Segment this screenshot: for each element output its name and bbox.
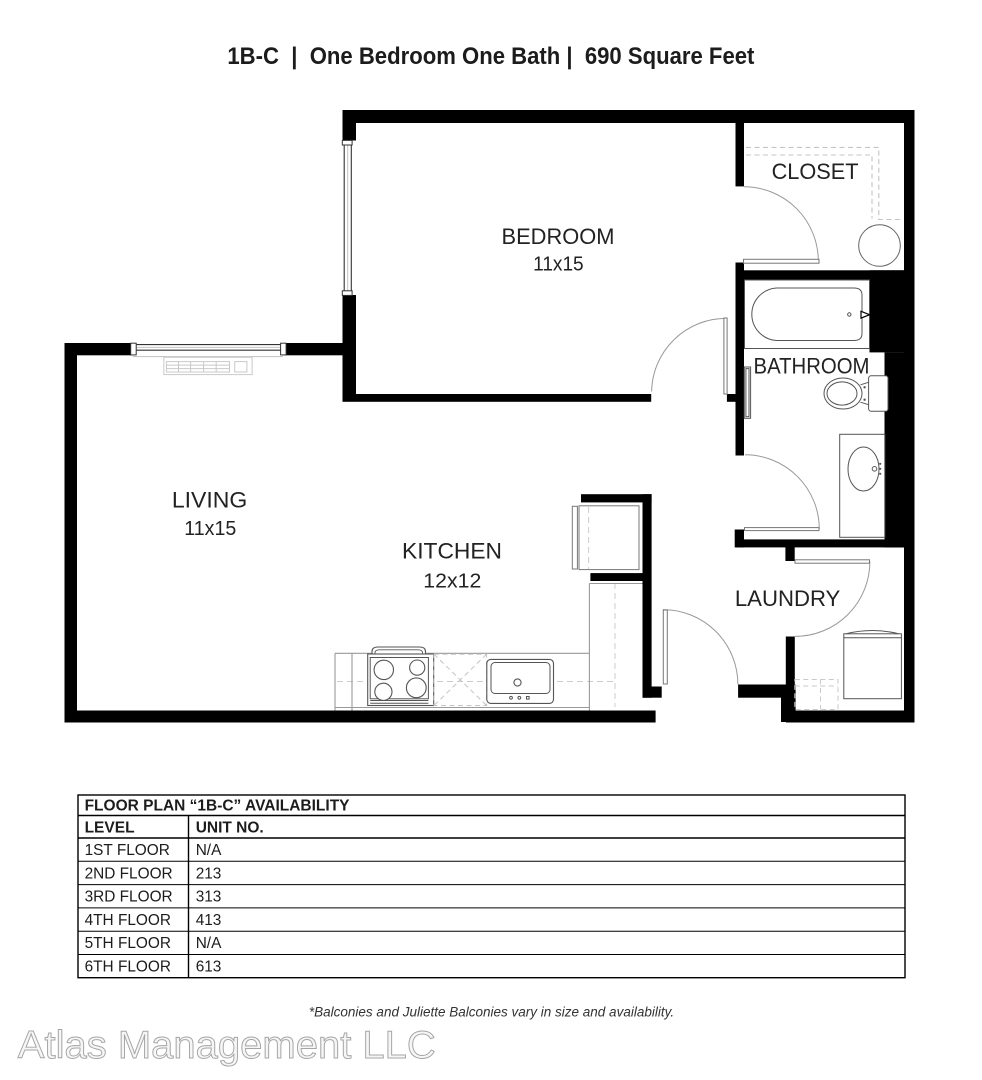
svg-text:213: 213 xyxy=(196,865,222,882)
svg-text:6TH FLOOR: 6TH FLOOR xyxy=(85,959,171,976)
svg-text:12x12: 12x12 xyxy=(423,570,481,593)
svg-text:11x15: 11x15 xyxy=(533,253,584,276)
svg-text:413: 413 xyxy=(196,912,222,929)
svg-text:LAUNDRY: LAUNDRY xyxy=(735,586,841,611)
svg-text:LEVEL: LEVEL xyxy=(85,820,135,837)
svg-text:KITCHEN: KITCHEN xyxy=(402,539,502,564)
svg-text:CLOSET: CLOSET xyxy=(772,159,859,184)
svg-text:LIVING: LIVING xyxy=(172,488,248,513)
svg-text:5TH FLOOR: 5TH FLOOR xyxy=(85,935,171,952)
svg-text:Atlas Management LLC: Atlas Management LLC xyxy=(18,1024,436,1067)
svg-text:613: 613 xyxy=(196,959,222,976)
svg-text:BATHROOM: BATHROOM xyxy=(754,353,870,378)
svg-text:N/A: N/A xyxy=(196,842,222,859)
svg-text:UNIT NO.: UNIT NO. xyxy=(196,820,264,837)
svg-text:1B-C | One Bedroom One Bath: 1B-C | One Bedroom One Bath | 690 Square… xyxy=(227,43,754,70)
svg-text:313: 313 xyxy=(196,889,222,906)
svg-text:FLOOR PLAN “1B-C” AVAILABILITY: FLOOR PLAN “1B-C” AVAILABILITY xyxy=(85,797,351,814)
svg-text:*Balconies and Juliette Balcon: *Balconies and Juliette Balconies vary i… xyxy=(309,1005,674,1020)
svg-text:11x15: 11x15 xyxy=(184,517,236,540)
svg-text:4TH FLOOR: 4TH FLOOR xyxy=(85,912,171,929)
svg-text:2ND FLOOR: 2ND FLOOR xyxy=(85,865,173,882)
svg-text:1ST FLOOR: 1ST FLOOR xyxy=(85,842,170,859)
svg-text:BEDROOM: BEDROOM xyxy=(502,224,615,249)
svg-text:N/A: N/A xyxy=(196,935,222,952)
svg-text:3RD FLOOR: 3RD FLOOR xyxy=(85,889,173,906)
